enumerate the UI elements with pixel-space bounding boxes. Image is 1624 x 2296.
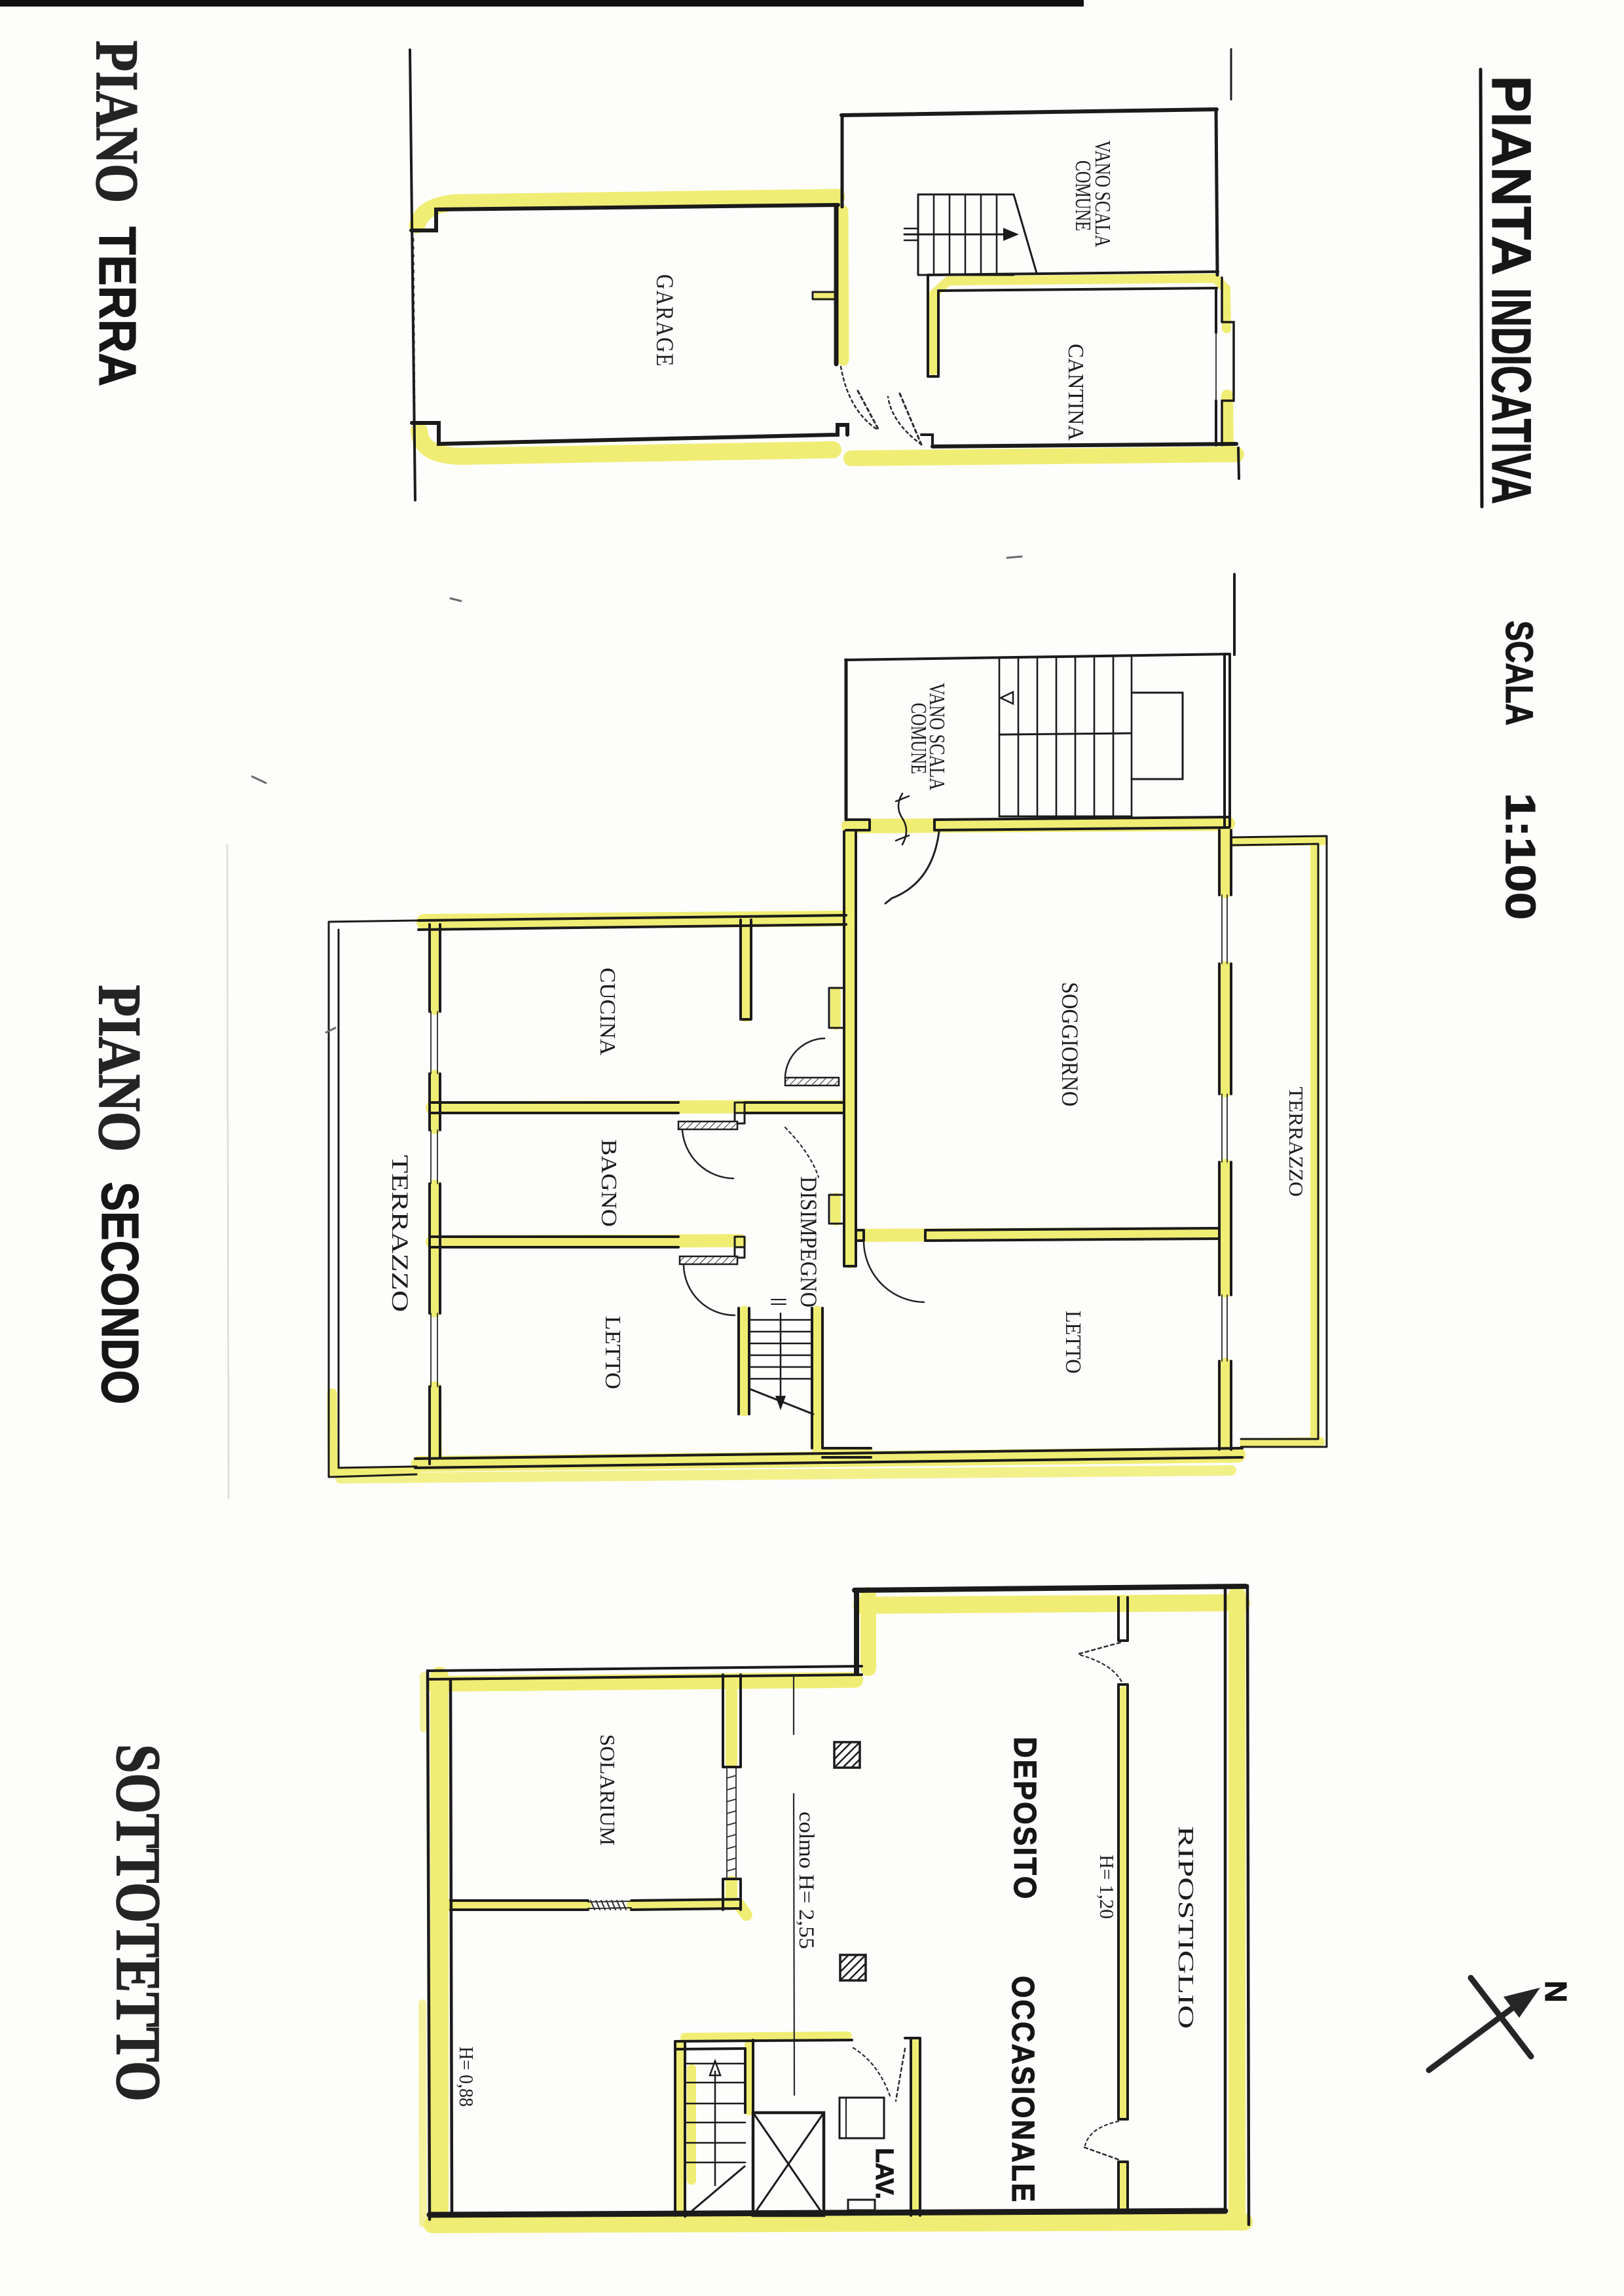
svg-text:CUCINA: CUCINA bbox=[595, 968, 619, 1055]
svg-text:LAV.: LAV. bbox=[870, 2148, 898, 2199]
svg-text:COMUNE: COMUNE bbox=[906, 703, 931, 774]
svg-text:INDICATIVA: INDICATIVA bbox=[1481, 288, 1542, 504]
svg-text:TERRAZZO: TERRAZZO bbox=[1285, 1087, 1308, 1197]
svg-text:SOLARIUM: SOLARIUM bbox=[596, 1734, 619, 1846]
svg-text:SOGGIORNO: SOGGIORNO bbox=[1057, 982, 1083, 1106]
svg-text:PIANO: PIANO bbox=[84, 41, 151, 203]
svg-text:1:100: 1:100 bbox=[1497, 793, 1544, 920]
svg-text:GARAGE: GARAGE bbox=[651, 274, 678, 367]
svg-text:DEPOSITO: DEPOSITO bbox=[1007, 1737, 1042, 1901]
svg-text:PIANO: PIANO bbox=[86, 985, 153, 1152]
svg-text:LETTO: LETTO bbox=[600, 1316, 625, 1389]
svg-text:RIPOSTIGLIO: RIPOSTIGLIO bbox=[1173, 1826, 1198, 2029]
svg-text:CANTINA: CANTINA bbox=[1063, 344, 1088, 441]
svg-text:H= 0,88: H= 0,88 bbox=[455, 2047, 478, 2107]
svg-text:TERRAZZO: TERRAZZO bbox=[387, 1155, 413, 1312]
svg-text:COMUNE: COMUNE bbox=[1071, 160, 1095, 231]
svg-text:N: N bbox=[1539, 1980, 1573, 2002]
svg-text:PIANTA: PIANTA bbox=[1481, 76, 1542, 276]
svg-text:BAGNO: BAGNO bbox=[597, 1139, 621, 1227]
svg-text:SOTTOTETTO: SOTTOTETTO bbox=[103, 1744, 174, 2102]
svg-text:H= 1,20: H= 1,20 bbox=[1096, 1855, 1118, 1919]
svg-text:OCCASIONALE: OCCASIONALE bbox=[1005, 1976, 1040, 2204]
svg-text:SCALA: SCALA bbox=[1498, 621, 1540, 725]
svg-text:TERRA: TERRA bbox=[88, 227, 147, 386]
svg-text:SECONDO: SECONDO bbox=[91, 1182, 149, 1404]
svg-text:colmo H= 2,55: colmo H= 2,55 bbox=[794, 1812, 818, 1949]
svg-text:DISIMPEGNO: DISIMPEGNO bbox=[796, 1176, 822, 1307]
svg-text:LETTO: LETTO bbox=[1061, 1311, 1085, 1374]
